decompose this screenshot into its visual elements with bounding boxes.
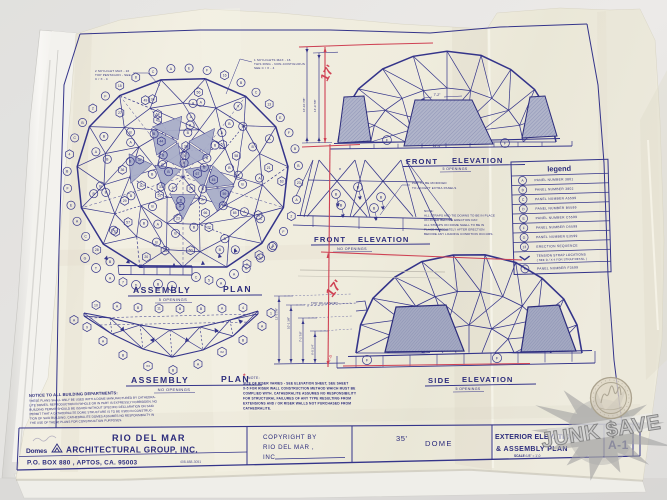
svg-text:FRONT: FRONT <box>406 157 438 166</box>
svg-text:34: 34 <box>151 97 155 101</box>
svg-text:15: 15 <box>118 84 122 88</box>
svg-text:PLACE IMMEDIATELY AFTER ERECTI: PLACE IMMEDIATELY AFTER ERECTION <box>424 227 485 231</box>
svg-text:ASSEMBLY: ASSEMBLY <box>133 285 191 295</box>
svg-text:5 OPENINGS: 5 OPENINGS <box>456 387 481 391</box>
svg-text:FOR STRUCTURAL FAILURES OF: FOR STRUCTURAL FAILURES OF ANY TYPE RESU… <box>243 397 351 401</box>
svg-text:67: 67 <box>195 172 199 176</box>
svg-text:F: F <box>288 131 290 135</box>
svg-text:INC: INC <box>263 454 275 461</box>
svg-text:B: B <box>335 192 338 196</box>
svg-text:PAD TO BE MODIFIED: PAD TO BE MODIFIED <box>412 181 447 185</box>
svg-text:37: 37 <box>138 158 142 162</box>
svg-text:X-5 FOR RISER WALL CONSTRU: X-5 FOR RISER WALL CONSTRUCTION METHOD W… <box>243 387 356 391</box>
svg-text:51: 51 <box>221 143 225 147</box>
svg-text:ELEVATION: ELEVATION <box>452 156 503 165</box>
svg-text:24: 24 <box>189 187 193 191</box>
svg-text:SEE C / X - 4: SEE C / X - 4 <box>254 66 275 70</box>
svg-text:65: 65 <box>233 211 237 215</box>
svg-text:31: 31 <box>159 185 163 189</box>
svg-text:7: 7 <box>122 280 124 284</box>
svg-text:14'-9 7/8": 14'-9 7/8" <box>313 99 317 112</box>
svg-text:NO OPENINGS: NO OPENINGS <box>158 387 191 392</box>
svg-text:ELEVATION: ELEVATION <box>358 235 409 244</box>
svg-text:NOTE:: NOTE: <box>424 209 434 213</box>
svg-text:7'-2 7/8": 7'-2 7/8" <box>299 331 303 342</box>
svg-text:16: 16 <box>223 74 227 78</box>
svg-text:F: F <box>67 187 69 191</box>
svg-text:F: F <box>104 94 106 98</box>
svg-text:44: 44 <box>159 140 163 144</box>
svg-text:ASSEMBLY: ASSEMBLY <box>131 375 189 385</box>
svg-text:2: 2 <box>258 253 260 257</box>
svg-text:16'-10 7/8": 16'-10 7/8" <box>302 98 306 112</box>
svg-text:ALL STRAPS AND TIE DOWNS TO BE: ALL STRAPS AND TIE DOWNS TO BE IN PLACE <box>424 214 495 218</box>
svg-text:1: 1 <box>246 262 248 266</box>
svg-text:27: 27 <box>118 111 122 115</box>
svg-text:49: 49 <box>143 98 147 102</box>
svg-text:G: G <box>84 256 87 260</box>
svg-text:X2: X2 <box>220 350 224 354</box>
svg-text:30: 30 <box>140 184 144 188</box>
svg-text:7'-2": 7'-2" <box>434 93 442 97</box>
svg-text:35: 35 <box>163 249 167 253</box>
svg-text:29: 29 <box>123 199 127 203</box>
svg-text:F: F <box>523 226 525 230</box>
svg-text:43: 43 <box>156 118 160 122</box>
svg-text:4: 4 <box>242 306 244 310</box>
svg-text:B: B <box>380 195 383 199</box>
svg-text:63: 63 <box>280 180 284 184</box>
svg-text:TO ACCEPT EXTRA PANELS: TO ACCEPT EXTRA PANELS <box>412 186 456 190</box>
svg-text:20: 20 <box>144 255 148 259</box>
svg-text:6'-0 1/4": 6'-0 1/4" <box>311 344 315 355</box>
svg-text:2: 2 <box>290 214 292 218</box>
svg-text:10'-1 3/8": 10'-1 3/8" <box>287 317 291 329</box>
svg-text:F: F <box>206 69 208 73</box>
svg-text:4: 4 <box>69 153 71 157</box>
svg-text:Domes: Domes <box>26 448 48 455</box>
svg-text:RIO DEL MAR ,: RIO DEL MAR , <box>263 444 314 451</box>
svg-text:COMPLIED WITH. CATHEDRALITE: COMPLIED WITH. CATHEDRALITE ASSUMES NO R… <box>243 392 357 396</box>
svg-text:64: 64 <box>156 112 160 116</box>
svg-text:408-688-3051: 408-688-3051 <box>180 460 201 464</box>
svg-text:SIDE: SIDE <box>428 376 451 385</box>
svg-text:*: * <box>339 168 341 174</box>
svg-text:RIO DEL MAR: RIO DEL MAR <box>112 433 186 443</box>
svg-text:13: 13 <box>522 245 526 249</box>
svg-text:X3: X3 <box>146 364 150 368</box>
svg-text:66: 66 <box>203 211 207 215</box>
svg-text:45: 45 <box>212 178 216 182</box>
svg-text:PLAN: PLAN <box>223 284 252 294</box>
svg-text:ON RISER BEFORE ERECTION DAY.: ON RISER BEFORE ERECTION DAY. <box>424 218 478 222</box>
svg-text:52: 52 <box>158 194 162 198</box>
svg-text:COPYRIGHT BY: COPYRIGHT BY <box>263 434 317 441</box>
svg-text:SIZE OF RISER VARIES - SEE: SIZE OF RISER VARIES - SEE ELEVATION SHE… <box>243 382 348 386</box>
svg-text:B: B <box>340 203 343 207</box>
svg-text:G: G <box>523 236 526 240</box>
svg-text:36: 36 <box>120 168 124 172</box>
svg-text:5 OPENINGS: 5 OPENINGS <box>159 297 187 302</box>
svg-text:23: 23 <box>176 217 180 221</box>
svg-text:13: 13 <box>267 102 271 106</box>
svg-text:1: 1 <box>270 311 272 315</box>
svg-text:21: 21 <box>267 166 271 170</box>
svg-text:CATHEDRALITE.: CATHEDRALITE. <box>243 407 271 411</box>
svg-text:SCALE:: SCALE: <box>514 454 526 458</box>
svg-text:NOTE:: NOTE: <box>248 376 260 380</box>
svg-text:P.O. BOX 880 , APTOS, CA. 95: P.O. BOX 880 , APTOS, CA. 95003 <box>27 460 138 467</box>
svg-text:F: F <box>282 230 284 234</box>
svg-text:ELEVATION: ELEVATION <box>462 375 513 384</box>
svg-text:59: 59 <box>222 192 226 196</box>
svg-text:2: 2 <box>92 107 94 111</box>
svg-text:10: 10 <box>94 303 98 307</box>
svg-text:9: 9 <box>86 325 88 329</box>
svg-text:B: B <box>373 206 376 210</box>
svg-text:57: 57 <box>126 220 130 224</box>
svg-text:38: 38 <box>184 144 188 148</box>
svg-text:22: 22 <box>207 226 211 230</box>
svg-text:BEFORE ANY LOADING CONDITION O: BEFORE ANY LOADING CONDITION OCCURS. <box>424 232 493 236</box>
svg-text:legend: legend <box>547 164 572 174</box>
svg-text:23: 23 <box>297 181 301 185</box>
svg-text:35': 35' <box>396 434 407 443</box>
svg-text:FRONT: FRONT <box>314 235 346 244</box>
svg-text:5 OPENINGS: 5 OPENINGS <box>443 167 468 171</box>
svg-text:8: 8 <box>135 76 137 80</box>
svg-text:56: 56 <box>197 91 201 95</box>
svg-text:ARCHITECTURAL GROUP, INC.: ARCHITECTURAL GROUP, INC. <box>66 446 198 455</box>
svg-text:5: 5 <box>208 278 210 282</box>
svg-text:C / X - 4: C / X - 4 <box>95 77 108 81</box>
svg-text:58: 58 <box>234 154 238 158</box>
svg-text:DOME: DOME <box>425 439 453 448</box>
svg-text:1/8" = 1'-0: 1/8" = 1'-0 <box>526 454 541 458</box>
svg-text:NO OPENINGS: NO OPENINGS <box>337 247 367 251</box>
svg-text:ALL STRAPS ON DOME SHELL TO BE: ALL STRAPS ON DOME SHELL TO BE IN <box>424 223 484 227</box>
svg-text:11: 11 <box>157 307 161 311</box>
svg-text:14'-4": 14'-4" <box>433 144 442 148</box>
svg-text:EXTENSIONS AND / OR RISER W: EXTENSIONS AND / OR RISER WALLS NOT PURC… <box>243 402 351 406</box>
svg-text:28: 28 <box>95 248 99 252</box>
svg-text:B: B <box>357 185 360 189</box>
svg-text:50: 50 <box>189 249 193 253</box>
